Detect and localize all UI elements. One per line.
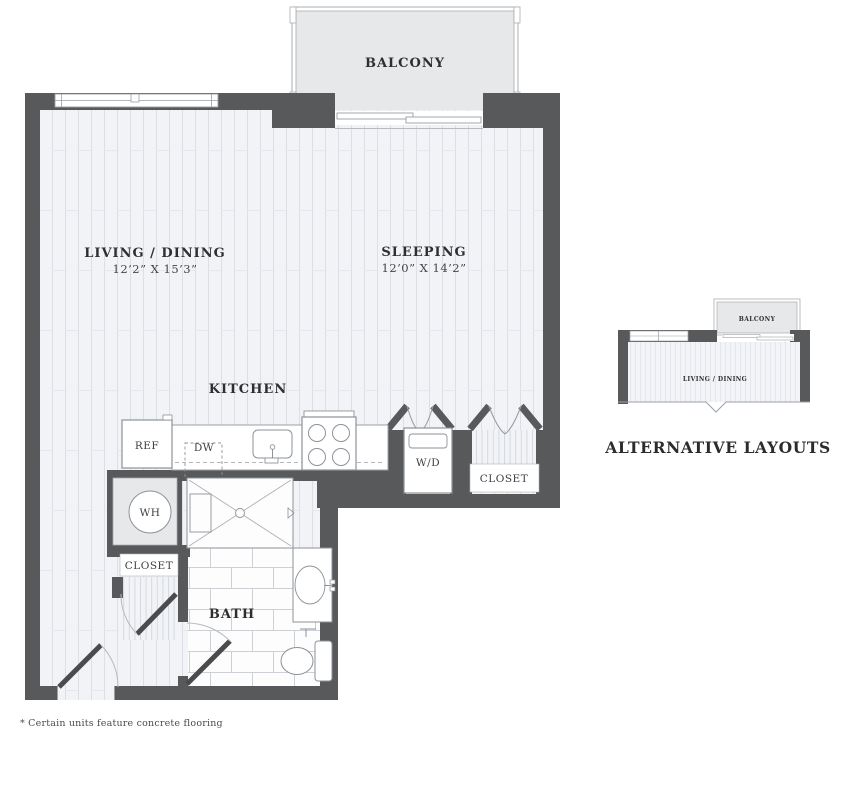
closet-left-hatch [121,577,177,640]
wd-label: W/D [416,457,440,469]
kitchen-sink [253,430,292,463]
sleeping-dims: 12’0” X 14’2” [382,261,467,275]
closet-right-hatch [472,430,538,464]
shower-head-wall [190,494,211,532]
closet-left: CLOSET [120,554,178,576]
closet-left-label: CLOSET [125,560,173,572]
alternative-layouts-heading: ALTERNATIVE LAYOUTS [604,438,831,457]
floorplan-page: BALCONY [0,0,846,792]
refrigerator: REF [122,415,172,468]
closet-right-label: CLOSET [480,473,528,485]
alt-balcony-label: BALCONY [739,316,776,323]
entry-opening-floor [57,686,115,700]
bath-label: BATH [209,607,255,622]
washer-dryer: W/D [404,428,452,493]
alt-sliding-door [722,334,794,341]
balcony-label: BALCONY [365,56,445,71]
alt-floor [628,342,800,402]
living-dining-dims: 12’2” X 15’3” [113,262,198,276]
kitchen-label: KITCHEN [209,382,287,397]
floorplan-drawing: BALCONY [0,0,846,792]
shower [187,478,294,548]
dw-label: DW [194,442,214,454]
ref-label: REF [135,440,159,452]
living-dining-label: LIVING / DINING [84,246,225,261]
stove [302,411,356,470]
plan-break-line [618,402,810,412]
window [55,94,218,107]
closet-right: CLOSET [470,464,539,492]
wh-label: WH [140,507,161,519]
sleeping-label: SLEEPING [381,245,466,260]
footnote: * Certain units feature concrete floorin… [20,718,223,729]
water-heater: WH [113,478,177,545]
alternative-layout-thumbnail: BALCONY LIVING / DINING ALTERNATIVE LAYO… [604,299,831,457]
alt-window [630,331,688,341]
alt-living-label: LIVING / DINING [683,376,747,383]
